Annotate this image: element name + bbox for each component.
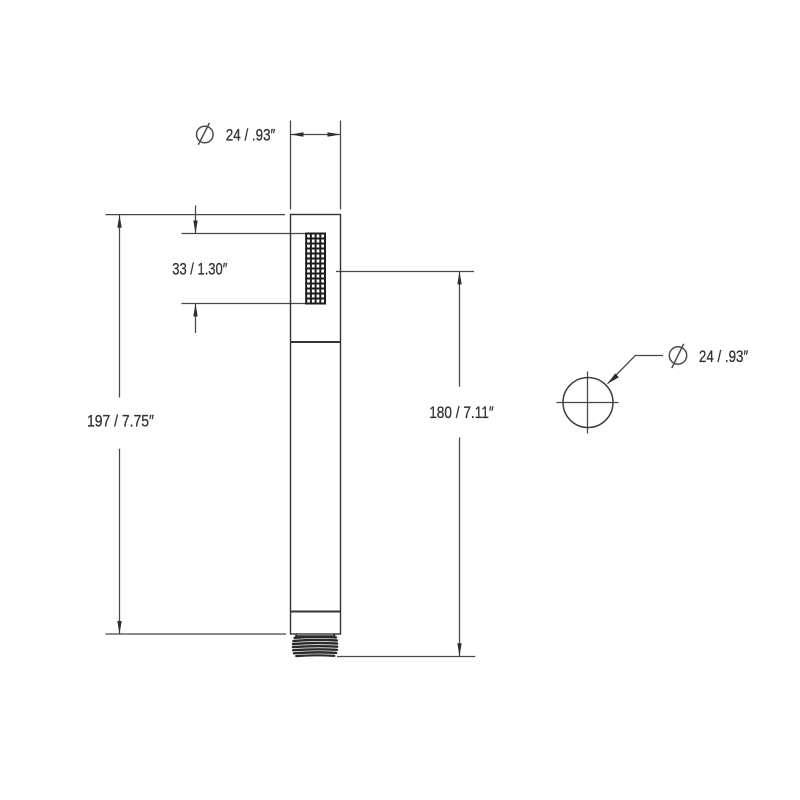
svg-text:33 / 1.30″: 33 / 1.30″ bbox=[172, 261, 227, 279]
svg-text:24 / .93″: 24 / .93″ bbox=[699, 348, 748, 366]
svg-text:24 / .93″: 24 / .93″ bbox=[226, 127, 276, 145]
svg-text:180 / 7.11″: 180 / 7.11″ bbox=[429, 404, 494, 422]
svg-text:197 / 7.75″: 197 / 7.75″ bbox=[87, 413, 154, 431]
